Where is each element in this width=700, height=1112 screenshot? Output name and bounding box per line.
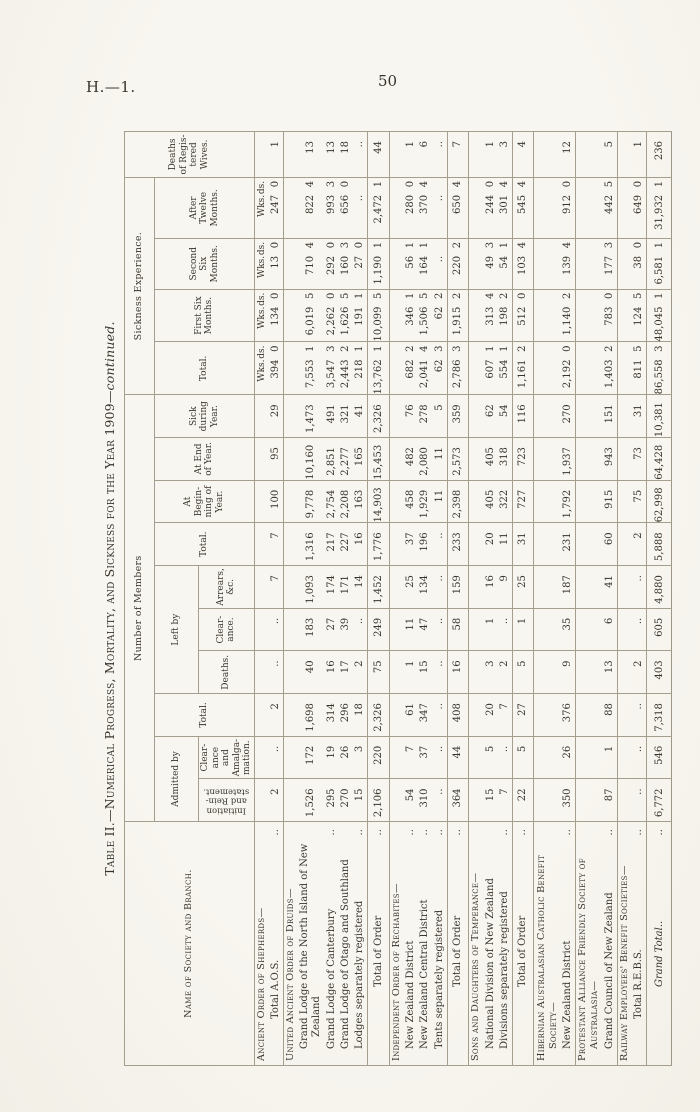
row-label-text: Divisions separately registered xyxy=(499,891,510,1049)
data-cell: .. xyxy=(433,736,448,779)
sickness-value: 346 xyxy=(405,307,417,342)
data-cell: 295 xyxy=(325,779,339,822)
data-cell: 26 xyxy=(561,736,576,779)
data-cell xyxy=(534,651,561,694)
row-label: Grand Lodge of Otago and Southland xyxy=(340,824,352,1065)
data-cell: 40 xyxy=(298,651,324,694)
table-row: Railway Employees' Benefit Societies— xyxy=(617,132,632,1066)
sickness-value: 5 xyxy=(373,290,385,307)
row-label: National Division of New Zealand xyxy=(485,824,497,1065)
data-cell: 321 xyxy=(339,395,353,438)
data-cell: 11 xyxy=(433,438,448,481)
data-cell: 8115 xyxy=(632,342,647,395)
society-name-cell: ..Total of Order xyxy=(368,822,389,1066)
data-cell xyxy=(284,608,299,651)
sickness-value: 4 xyxy=(419,343,431,360)
society-name-cell: Protestant Alliance Friendly Society ofA… xyxy=(576,822,603,1066)
sickness-value: 4 xyxy=(452,178,464,195)
data-cell: 7 xyxy=(269,566,284,609)
data-cell xyxy=(617,238,632,289)
data-cell xyxy=(254,651,269,694)
data-cell: 87 xyxy=(603,779,618,822)
sickness-value: 912 xyxy=(562,195,574,238)
data-cell: 134 xyxy=(418,566,432,609)
data-cell: 561 xyxy=(404,238,418,289)
data-cell: 10,0995 xyxy=(368,289,389,342)
data-cell: 270 xyxy=(353,238,368,289)
sickness-value: 2 xyxy=(517,343,529,360)
data-cell: 2,754 xyxy=(325,480,339,523)
sickness-value: 160 xyxy=(340,256,352,289)
row-label-text: Grand Total.. xyxy=(654,921,665,987)
sickness-value: 2,192 xyxy=(562,360,574,395)
data-cell: 2 xyxy=(632,651,647,694)
sickness-value: 0 xyxy=(517,290,529,307)
data-cell: 7 xyxy=(404,736,418,779)
data-cell: 76 xyxy=(404,395,418,438)
data-cell: 1,792 xyxy=(561,480,576,523)
data-cell xyxy=(617,177,632,238)
sickness-value: 27 xyxy=(354,256,366,289)
data-cell: 1,9152 xyxy=(447,289,468,342)
data-cell: 6560 xyxy=(339,177,353,238)
data-cell xyxy=(284,523,299,566)
table-row: ..Tents separately registered...........… xyxy=(433,132,448,1066)
data-cell: 9120 xyxy=(561,177,576,238)
data-cell: 174 xyxy=(325,566,339,609)
data-cell: 1,6265 xyxy=(339,289,353,342)
sickness-value: 822 xyxy=(305,195,317,238)
data-cell: 11 xyxy=(498,523,513,566)
sickness-value: 2,262 xyxy=(326,307,338,342)
sickness-value: 139 xyxy=(562,256,574,289)
data-cell: 12 xyxy=(561,132,576,178)
col-header-first-six-months: First Six Months. xyxy=(155,289,255,342)
sickness-value: 3 xyxy=(452,343,464,360)
data-cell xyxy=(284,395,299,438)
data-cell: 2440 xyxy=(483,177,497,238)
data-cell: 2,1920 xyxy=(561,342,576,395)
data-cell: 15 xyxy=(353,779,368,822)
sickness-value: 292 xyxy=(326,256,338,289)
society-name-cell: ..New Zealand District xyxy=(561,822,576,1066)
sickness-value: 4 xyxy=(485,290,497,307)
sickness-value: 2,041 xyxy=(419,360,431,395)
table-title: Table II.—Numerical Progress, Mortality,… xyxy=(102,131,117,1066)
data-cell: 6,5811 xyxy=(647,238,672,289)
data-cell: .. xyxy=(433,608,448,651)
data-cell: 3 xyxy=(353,736,368,779)
sickness-value: 512 xyxy=(517,307,529,342)
society-name-cell: Hibernian Australasian Catholic BenefitS… xyxy=(534,822,561,1066)
data-cell: .. xyxy=(632,779,647,822)
data-cell xyxy=(617,566,632,609)
sickness-value: 301 xyxy=(499,195,511,238)
data-cell: 1911 xyxy=(353,289,368,342)
sickness-value: 1 xyxy=(654,178,666,195)
data-cell xyxy=(254,395,269,438)
society-name-cell: Grand Lodge of the North Island of NewZe… xyxy=(298,822,324,1066)
data-cell: 9 xyxy=(498,566,513,609)
dot-leader: .. xyxy=(373,824,385,835)
table-header: Name of Society and Branch. Number of Me… xyxy=(125,132,255,1066)
data-cell: 915 xyxy=(603,480,618,523)
sickness-value: 545 xyxy=(517,195,529,238)
sickness-value: 3 xyxy=(654,343,666,360)
data-cell: 6822 xyxy=(404,342,418,395)
society-name-cell: ..Tents separately registered xyxy=(433,822,448,1066)
data-cell xyxy=(576,608,603,651)
data-cell xyxy=(469,289,484,342)
sickness-value: 1 xyxy=(499,343,511,360)
table-row: ..New Zealand District547611112537458482… xyxy=(404,132,418,1066)
data-cell: 1,5065 xyxy=(418,289,432,342)
data-cell: 622 xyxy=(433,289,448,342)
data-cell xyxy=(284,736,299,779)
data-cell: 130 xyxy=(269,238,284,289)
row-label: ..Grand Lodge of Canterbury xyxy=(326,824,338,1065)
data-cell xyxy=(389,132,404,178)
data-cell xyxy=(534,736,561,779)
sickness-value: 0 xyxy=(633,178,645,195)
data-cell: 249 xyxy=(368,608,389,651)
data-cell: 44 xyxy=(447,736,468,779)
data-cell: .. xyxy=(353,608,368,651)
row-label-text: Grand Lodge of the North Island of New xyxy=(299,844,310,1049)
row-label-text: Grand Lodge of Otago and Southland xyxy=(340,859,351,1049)
data-cell: 26 xyxy=(339,736,353,779)
society-name-cell: Grand Lodge of Otago and Southland xyxy=(339,822,353,1066)
sickness-value: 54 xyxy=(499,256,511,289)
row-label-text: Grand Lodge of Canterbury xyxy=(326,909,337,1049)
sickness-value: 134 xyxy=(270,307,282,342)
col-header-second-six-months: Second Six Months. xyxy=(155,238,255,289)
data-cell: 15,453 xyxy=(368,438,389,481)
sickness-value: 394 xyxy=(270,360,282,395)
row-label-text: Total of Order xyxy=(373,916,384,987)
data-cell: 1,526 xyxy=(298,779,324,822)
sickness-value: 370 xyxy=(419,195,431,238)
data-cell: 1 xyxy=(269,132,284,178)
table-row: ..Divisions separately registered7..72..… xyxy=(498,132,513,1066)
row-label-text: New Zealand District xyxy=(405,941,416,1049)
row-label: Protestant Alliance Friendly Society of xyxy=(577,824,589,1065)
sickness-value: 2 xyxy=(452,290,464,307)
data-cell: 88 xyxy=(603,694,618,737)
row-label-text: Railway Employees' Benefit Societies— xyxy=(619,865,630,1061)
sickness-value: 0 xyxy=(326,239,338,256)
data-cell: 1,1402 xyxy=(561,289,576,342)
dot-leader: .. xyxy=(434,824,446,835)
sickness-value: 1 xyxy=(354,343,366,360)
data-cell xyxy=(576,736,603,779)
dot-leader: .. xyxy=(270,824,282,835)
table-row: ..Total of Order2,1062202,326752491,4521… xyxy=(368,132,389,1066)
data-cell: 1,452 xyxy=(368,566,389,609)
data-cell xyxy=(389,694,404,737)
data-cell: 31,9321 xyxy=(647,177,672,238)
sickness-value: 10,099 xyxy=(373,307,385,342)
row-label-text: Independent Order of Rechabites— xyxy=(391,883,402,1061)
sickness-value: 3,547 xyxy=(326,360,338,395)
data-cell: .. xyxy=(433,238,448,289)
data-cell: 1394 xyxy=(561,238,576,289)
data-cell: 2,326 xyxy=(368,694,389,737)
data-cell: 347 xyxy=(418,694,432,737)
data-cell: 296 xyxy=(339,694,353,737)
data-cell xyxy=(284,438,299,481)
data-cell: .. xyxy=(269,736,284,779)
data-cell: 1,316 xyxy=(298,523,324,566)
data-cell: 31 xyxy=(512,523,533,566)
sickness-value: 4 xyxy=(562,239,574,256)
data-cell: .. xyxy=(353,177,368,238)
data-cell xyxy=(389,289,404,342)
data-cell: 2470 xyxy=(269,177,284,238)
dot-leader: .. xyxy=(499,824,511,835)
table-row: United Ancient Order of Druids— xyxy=(284,132,299,1066)
data-cell: 10,381 xyxy=(647,395,672,438)
data-cell: 62,998 xyxy=(647,480,672,523)
data-cell: 16 xyxy=(325,651,339,694)
data-cell: 1245 xyxy=(632,289,647,342)
data-cell: 1034 xyxy=(512,238,533,289)
sickness-value: .. xyxy=(354,195,366,238)
data-cell xyxy=(617,779,632,822)
sickness-value: 1 xyxy=(654,239,666,256)
data-cell xyxy=(576,238,603,289)
data-cell: 1,776 xyxy=(368,523,389,566)
data-cell: 165 xyxy=(353,438,368,481)
data-cell xyxy=(576,651,603,694)
table-row: ..Grand Council of New Zealand8718813641… xyxy=(603,132,618,1066)
col-header-initiation-reinstatement: Initiation and Rein- statement. xyxy=(199,779,255,822)
data-cell xyxy=(284,694,299,737)
data-cell: 2,106 xyxy=(368,779,389,822)
sickness-value: 0 xyxy=(562,178,574,195)
data-cell xyxy=(284,342,299,395)
data-cell: 350 xyxy=(561,779,576,822)
row-label: ..Total R.E.B.S. xyxy=(633,824,645,1065)
data-cell: 20 xyxy=(483,694,497,737)
dot-leader: .. xyxy=(326,824,338,835)
sickness-value: 1 xyxy=(405,290,417,307)
data-cell xyxy=(534,177,561,238)
data-cell: 1,4032 xyxy=(603,342,618,395)
row-label: Ancient Order of Shepherds— xyxy=(256,824,268,1065)
data-cell: 9933 xyxy=(325,177,339,238)
data-cell: 25 xyxy=(512,566,533,609)
data-cell xyxy=(389,651,404,694)
data-cell xyxy=(389,779,404,822)
sickness-value: 1,915 xyxy=(452,307,464,342)
data-cell: 6 xyxy=(418,132,432,178)
sickness-value: 4 xyxy=(517,239,529,256)
data-cell: 723 xyxy=(512,438,533,481)
data-cell xyxy=(469,566,484,609)
data-cell: 151 xyxy=(603,395,618,438)
col-header-total-admitted: Total. xyxy=(155,694,255,737)
data-cell: .. xyxy=(498,608,513,651)
sickness-value: 177 xyxy=(604,256,616,289)
data-cell xyxy=(284,480,299,523)
data-cell: 100 xyxy=(269,480,284,523)
row-label: Railway Employees' Benefit Societies— xyxy=(619,824,631,1065)
society-name-cell: Railway Employees' Benefit Societies— xyxy=(617,822,632,1066)
data-cell: 493 xyxy=(483,238,497,289)
data-cell xyxy=(389,342,404,395)
col-header-initiation-label: Initiation and Rein- statement. xyxy=(203,786,249,815)
data-cell: 27 xyxy=(325,608,339,651)
data-cell: 5541 xyxy=(498,342,513,395)
dot-leader: .. xyxy=(654,824,666,835)
row-label: ..Grand Total.. xyxy=(654,824,666,1065)
sickness-value: 0 xyxy=(270,178,282,195)
sickness-value: 164 xyxy=(419,256,431,289)
row-label: ..Tents separately registered xyxy=(434,824,446,1065)
data-cell xyxy=(469,438,484,481)
sickness-value: 3 xyxy=(326,178,338,195)
data-cell: 86,5583 xyxy=(647,342,672,395)
data-cell: .. xyxy=(632,736,647,779)
data-cell xyxy=(576,289,603,342)
data-cell: 47 xyxy=(418,608,432,651)
data-cell: .. xyxy=(632,694,647,737)
row-label: Society— xyxy=(548,824,560,1065)
data-cell xyxy=(254,608,269,651)
data-cell: 27 xyxy=(512,694,533,737)
society-name-cell: Sons and Daughters of Temperance— xyxy=(469,822,484,1066)
data-cell: 623 xyxy=(433,342,448,395)
sickness-value: 62 xyxy=(434,360,446,395)
row-label: Grand Lodge of the North Island of New xyxy=(299,824,311,1065)
data-cell: 7 xyxy=(269,523,284,566)
dot-leader: .. xyxy=(562,824,574,835)
data-cell: 1773 xyxy=(603,238,618,289)
data-cell xyxy=(254,694,269,737)
sickness-value: 0 xyxy=(604,290,616,307)
table-row: Sons and Daughters of Temperance— xyxy=(469,132,484,1066)
sickness-value: 1 xyxy=(373,178,385,195)
sickness-value: 6,581 xyxy=(654,256,666,289)
data-cell xyxy=(617,132,632,178)
sickness-value: 31,932 xyxy=(654,195,666,238)
society-name-cell: National Division of New Zealand xyxy=(483,822,497,1066)
data-cell xyxy=(469,651,484,694)
data-cell: 95 xyxy=(269,438,284,481)
row-label-text: New Zealand District xyxy=(562,941,573,1049)
data-cell: 458 xyxy=(404,480,418,523)
data-cell xyxy=(389,566,404,609)
data-cell xyxy=(576,395,603,438)
data-cell: 2 xyxy=(353,651,368,694)
society-name-cell: United Ancient Order of Druids— xyxy=(284,822,299,1066)
data-cell xyxy=(576,342,603,395)
data-cell: 6,772 xyxy=(647,779,672,822)
data-cell xyxy=(469,342,484,395)
sickness-value: 3 xyxy=(604,239,616,256)
data-cell: 5 xyxy=(512,651,533,694)
data-cell: 1,1901 xyxy=(368,238,389,289)
sickness-value: 0 xyxy=(562,343,574,360)
data-cell: 727 xyxy=(512,480,533,523)
data-cell: 3,5473 xyxy=(325,342,339,395)
data-cell: 13,7621 xyxy=(368,342,389,395)
data-cell: .. xyxy=(433,651,448,694)
data-cell: 1 xyxy=(483,608,497,651)
data-cell xyxy=(284,177,299,238)
sickness-value: 1 xyxy=(373,343,385,360)
sickness-value: 4 xyxy=(305,239,317,256)
society-name-cell: Independent Order of Rechabites— xyxy=(389,822,404,1066)
data-cell xyxy=(254,480,269,523)
data-cell: 7,5531 xyxy=(298,342,324,395)
data-cell xyxy=(534,238,561,289)
data-cell: 187 xyxy=(561,566,576,609)
data-cell: 3461 xyxy=(404,289,418,342)
col-header-name: Name of Society and Branch. xyxy=(125,822,255,1066)
data-cell: 61 xyxy=(404,694,418,737)
row-label-text: Tents separately registered xyxy=(434,910,445,1049)
row-label-text: Zealand xyxy=(311,996,322,1037)
dot-leader: .. xyxy=(452,824,464,835)
data-cell xyxy=(534,438,561,481)
data-cell: 7830 xyxy=(603,289,618,342)
data-cell: 233 xyxy=(447,523,468,566)
data-cell: 376 xyxy=(561,694,576,737)
data-cell: 35 xyxy=(561,608,576,651)
table-title-continued: continued. xyxy=(102,321,117,390)
data-cell xyxy=(389,736,404,779)
row-label-text: Hibernian Australasian Catholic Benefit xyxy=(536,855,547,1061)
data-cell xyxy=(576,523,603,566)
data-cell xyxy=(469,694,484,737)
data-cell: 73 xyxy=(632,438,647,481)
data-cell xyxy=(254,438,269,481)
data-cell xyxy=(469,480,484,523)
units-label: Wks.ds. xyxy=(256,178,268,238)
col-header-clearance-amalgamation: Clear- ance and Amalga- mation. xyxy=(199,736,255,779)
row-label: ..Total of Order xyxy=(373,824,385,1065)
sickness-value: 0 xyxy=(633,239,645,256)
row-label-text: Protestant Alliance Friendly Society of xyxy=(577,858,588,1061)
sickness-value: 1,626 xyxy=(340,307,352,342)
data-cell: 75 xyxy=(632,480,647,523)
data-cell: .. xyxy=(632,608,647,651)
sickness-value: 2 xyxy=(499,290,511,307)
row-label: Zealand xyxy=(311,824,323,1065)
sickness-value: 0 xyxy=(270,343,282,360)
data-cell: 41 xyxy=(603,566,618,609)
data-cell: 2181 xyxy=(353,342,368,395)
data-cell: 54 xyxy=(498,395,513,438)
data-cell: 3 xyxy=(483,651,497,694)
data-cell xyxy=(534,779,561,822)
sickness-value: 0 xyxy=(326,290,338,307)
data-cell: 310 xyxy=(418,779,432,822)
society-name-cell: ..Lodges separately registered xyxy=(353,822,368,1066)
data-cell: 1,698 xyxy=(298,694,324,737)
data-cell: 943 xyxy=(603,438,618,481)
sickness-value: 2 xyxy=(562,290,574,307)
sickness-value: .. xyxy=(434,195,446,238)
data-cell: 1,929 xyxy=(418,480,432,523)
data-cell: 2,080 xyxy=(418,438,432,481)
data-cell: 13 xyxy=(298,132,324,178)
row-label: ..Total of Order xyxy=(517,824,529,1065)
data-cell: 270 xyxy=(339,779,353,822)
data-cell: 5454 xyxy=(512,177,533,238)
